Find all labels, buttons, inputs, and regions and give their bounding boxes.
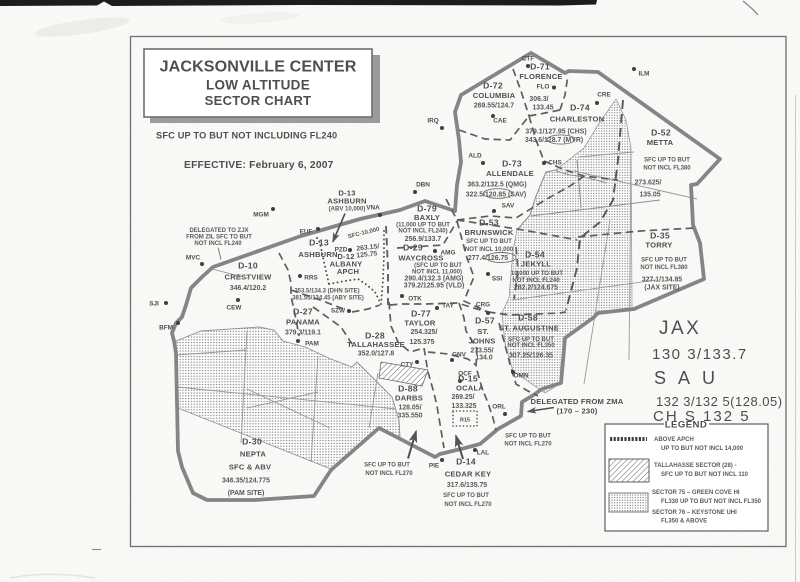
svg-text:DBN: DBN [416, 182, 430, 189]
svg-text:322.5/120.85 (SAV): 322.5/120.85 (SAV) [466, 192, 526, 199]
svg-text:ABOVE APCH: ABOVE APCH [654, 437, 694, 443]
svg-text:135.05: 135.05 [639, 192, 660, 199]
svg-text:JAX: JAX [659, 318, 701, 339]
svg-text:NEPTA: NEPTA [240, 450, 266, 459]
svg-text:S A U: S A U [654, 368, 719, 388]
svg-text:381.55/134.45 (ABY SITE): 381.55/134.45 (ABY SITE) [292, 296, 364, 302]
svg-text:273.625/: 273.625/ [635, 180, 662, 187]
svg-text:(ABV 10,000): (ABV 10,000) [329, 207, 366, 213]
svg-text:UP TO BUT NOT INCL 14,000: UP TO BUT NOT INCL 14,000 [661, 446, 744, 452]
svg-text:ALLENDALE: ALLENDALE [486, 169, 534, 178]
svg-text:OTK: OTK [408, 296, 422, 303]
svg-text:DARBS: DARBS [395, 394, 423, 403]
svg-text:FLO: FLO [537, 84, 550, 91]
svg-text:FL350 & ABOVE: FL350 & ABOVE [661, 519, 707, 525]
svg-text:CRG: CRG [476, 302, 490, 309]
svg-text:APCH: APCH [337, 267, 359, 276]
svg-text:277.4/126.75: 277.4/126.75 [468, 255, 508, 262]
svg-text:282.2/124.675: 282.2/124.675 [514, 285, 558, 292]
svg-text:JEKYLL: JEKYLL [521, 260, 551, 269]
svg-text:327.1/134.85: 327.1/134.85 [642, 277, 682, 284]
svg-text:134.0: 134.0 [475, 355, 492, 362]
svg-text:GNV: GNV [452, 352, 467, 359]
svg-text:MGM: MGM [253, 212, 269, 219]
svg-text:CRE: CRE [597, 92, 611, 99]
svg-text:TALLAHASSEE: TALLAHASSEE [347, 340, 405, 349]
svg-text:D-15: D-15 [458, 374, 478, 384]
svg-text:VNA: VNA [366, 205, 380, 212]
svg-text:D-79: D-79 [417, 204, 437, 214]
svg-text:353.5/134.3 (DHN SITE): 353.5/134.3 (DHN SITE) [294, 289, 359, 295]
svg-text:COLUMBIA: COLUMBIA [473, 91, 516, 100]
svg-text:D-52: D-52 [651, 128, 671, 138]
svg-text:SFC UP TO BUT: SFC UP TO BUT [443, 493, 489, 499]
svg-text:(PAM SITE): (PAM SITE) [228, 490, 265, 497]
svg-text:SFC UP TO BUT NOT INCLUDING FL: SFC UP TO BUT NOT INCLUDING FL240 [156, 131, 337, 141]
svg-text:NOT INCL FL270: NOT INCL FL270 [444, 502, 492, 508]
svg-text:IRQ: IRQ [427, 118, 438, 125]
svg-text:NOT INCL FL240: NOT INCL FL240 [194, 241, 242, 247]
svg-text:SSI: SSI [492, 276, 503, 283]
svg-text:10,000 UP TO BUT: 10,000 UP TO BUT [511, 271, 563, 277]
svg-text:(JAX SITE): (JAX SITE) [644, 285, 679, 292]
svg-text:125.375: 125.375 [410, 339, 435, 346]
svg-text:LAL: LAL [477, 450, 490, 457]
svg-text:SFC UP TO BUT: SFC UP TO BUT [466, 239, 512, 245]
svg-text:306.3/: 306.3/ [529, 96, 548, 103]
svg-text:SFC UP TO BUT: SFC UP TO BUT [364, 463, 410, 469]
svg-text:132 3/132 5(128.05): 132 3/132 5(128.05) [656, 394, 783, 409]
svg-text:SFC & ABV: SFC & ABV [229, 463, 272, 472]
svg-text:D-27: D-27 [293, 307, 313, 317]
svg-text:D-74: D-74 [570, 103, 590, 113]
svg-text:346.35/124.775: 346.35/124.775 [222, 478, 270, 485]
svg-text:CHARLESTON: CHARLESTON [550, 115, 605, 124]
svg-text:D-30: D-30 [242, 437, 262, 447]
svg-text:ST. AUGUSTINE: ST. AUGUSTINE [499, 324, 559, 333]
svg-text:OMN: OMN [514, 373, 529, 380]
svg-text:SECTOR 76 – KEYSTONE UHI: SECTOR 76 – KEYSTONE UHI [652, 510, 737, 516]
svg-text:D-35: D-35 [650, 231, 670, 241]
svg-text:379.2/125.95 (VLD): 379.2/125.95 (VLD) [404, 283, 465, 290]
svg-text:BFM: BFM [159, 325, 173, 332]
svg-text:EFFECTIVE: February 6, 2007: EFFECTIVE: February 6, 2007 [184, 160, 334, 171]
svg-text:352.0/127.8: 352.0/127.8 [358, 351, 395, 358]
svg-text:TALLAHASSE SECTOR (28) -: TALLAHASSE SECTOR (28) - [654, 463, 736, 469]
svg-text:307.25/126.35: 307.25/126.35 [509, 353, 553, 360]
svg-text:TAY: TAY [442, 303, 454, 310]
svg-text:PAM: PAM [305, 341, 319, 348]
svg-text:128.05/: 128.05/ [399, 405, 422, 412]
svg-text:D-10: D-10 [238, 261, 258, 271]
svg-text:SAV: SAV [502, 203, 515, 210]
svg-text:NOT INCL FL380: NOT INCL FL380 [640, 265, 688, 271]
svg-text:RRS: RRS [304, 275, 318, 282]
svg-text:CHS: CHS [548, 160, 562, 167]
svg-text:PANAMA: PANAMA [286, 318, 320, 327]
svg-text:CH S 132 5: CH S 132 5 [653, 408, 751, 425]
svg-text:ILM: ILM [638, 71, 649, 78]
svg-text:379.3/119.1: 379.3/119.1 [285, 330, 321, 337]
svg-text:269.25/: 269.25/ [452, 394, 475, 401]
svg-text:ALD: ALD [468, 153, 482, 160]
svg-text:269.55/124.7: 269.55/124.7 [474, 103, 514, 110]
svg-text:CEDAR KEY: CEDAR KEY [445, 470, 492, 479]
svg-text:SECTOR CHART: SECTOR CHART [205, 93, 312, 108]
svg-text:NOT INCL FL380: NOT INCL FL380 [643, 166, 691, 172]
svg-text:(170 – 230): (170 – 230) [556, 407, 597, 416]
svg-text:133.45: 133.45 [532, 105, 553, 112]
svg-text:317.6/135.75: 317.6/135.75 [447, 482, 487, 489]
svg-text:D-71: D-71 [530, 62, 550, 72]
svg-text:335.550: 335.550 [398, 413, 423, 420]
svg-text:CTY: CTY [401, 362, 415, 369]
svg-text:NOT INCL FL350: NOT INCL FL350 [507, 343, 555, 349]
svg-text:346.4/120.2: 346.4/120.2 [230, 285, 267, 292]
svg-text:D-58: D-58 [518, 313, 538, 323]
svg-text:D-57: D-57 [475, 316, 495, 326]
svg-text:TORRY: TORRY [645, 241, 672, 250]
svg-text:SECTOR 75 – GREEN COVE HI: SECTOR 75 – GREEN COVE HI [652, 490, 740, 496]
svg-text:FROM ZIL SFC TO BUT: FROM ZIL SFC TO BUT [186, 235, 252, 241]
svg-text:JOHNS: JOHNS [468, 337, 495, 346]
svg-text:133.325: 133.325 [452, 403, 477, 410]
svg-text:ASHBURN: ASHBURN [327, 197, 366, 206]
svg-text:LOW ALTITUDE: LOW ALTITUDE [206, 78, 310, 93]
svg-text:SFC UP TO BUT: SFC UP TO BUT [644, 158, 690, 164]
svg-text:D-73: D-73 [502, 159, 522, 169]
svg-text:(SFC UP TO BUT: (SFC UP TO BUT [414, 263, 462, 269]
svg-text:290.4/132.3 (AMG): 290.4/132.3 (AMG) [405, 276, 464, 283]
svg-text:JACKSONVILLE CENTER: JACKSONVILLE CENTER [160, 58, 357, 76]
svg-text:DELEGATED FROM ZMA: DELEGATED FROM ZMA [531, 397, 624, 406]
svg-text:D-88: D-88 [398, 384, 418, 394]
svg-text:D-28: D-28 [365, 331, 385, 341]
svg-text:CEW: CEW [227, 305, 243, 312]
svg-text:BRUNSWICK: BRUNSWICK [464, 228, 513, 237]
svg-text:ST.: ST. [477, 327, 489, 336]
svg-text:379.1/127.95 (CHS): 379.1/127.95 (CHS) [525, 129, 586, 136]
svg-text:OCALA: OCALA [456, 384, 484, 393]
svg-text:SFC UP TO BUT NOT INCL 110: SFC UP TO BUT NOT INCL 110 [661, 472, 749, 478]
svg-text:SFC UP TO BUT: SFC UP TO BUT [505, 434, 551, 440]
svg-text:EUF: EUF [300, 229, 313, 236]
svg-text:130 3/133.7: 130 3/133.7 [652, 346, 748, 363]
svg-text:363.2/132.5 (QMG): 363.2/132.5 (QMG) [467, 182, 526, 189]
svg-text:254.325/: 254.325/ [411, 329, 438, 336]
svg-text:D-53: D-53 [479, 218, 499, 228]
svg-text:MVC: MVC [186, 255, 201, 262]
svg-text:FLORENCE: FLORENCE [519, 72, 562, 81]
svg-text:SFC UP TO BUT: SFC UP TO BUT [641, 258, 687, 264]
svg-text:273.55/: 273.55/ [471, 348, 494, 355]
svg-text:D-77: D-77 [411, 309, 431, 319]
svg-text:D-29: D-29 [403, 243, 423, 253]
svg-text:D-54: D-54 [525, 250, 545, 260]
svg-text:BAXLY: BAXLY [414, 213, 440, 222]
svg-text:PIE: PIE [429, 463, 440, 470]
svg-text:NOT INCL FL240: NOT INCL FL240 [512, 278, 560, 284]
svg-text:D-14: D-14 [456, 457, 476, 467]
svg-text:TAYLOR: TAYLOR [404, 319, 435, 328]
svg-text:NOT INCL FL270: NOT INCL FL270 [365, 471, 413, 477]
svg-text:SZW: SZW [331, 308, 346, 315]
svg-text:NOT INCL FL240): NOT INCL FL240) [398, 229, 447, 235]
svg-text:D-72: D-72 [483, 81, 503, 91]
svg-text:NOT INCL FL270: NOT INCL FL270 [504, 442, 552, 448]
svg-text:DELEGATED TO ZJX: DELEGATED TO ZJX [189, 228, 248, 234]
svg-text:CAE: CAE [493, 118, 507, 125]
svg-text:ORL: ORL [492, 404, 506, 411]
svg-text:R15: R15 [460, 418, 470, 424]
svg-text:SJI: SJI [149, 301, 159, 308]
svg-text:WAYCROSS: WAYCROSS [398, 254, 443, 263]
svg-text:ASHBURN: ASHBURN [298, 250, 337, 259]
svg-text:METTA: METTA [647, 138, 674, 147]
svg-text:FL330 UP TO BUT NOT INCL FL350: FL330 UP TO BUT NOT INCL FL350 [661, 499, 762, 505]
svg-text:D-13: D-13 [309, 238, 329, 248]
svg-text:NOT INCL 10,000: NOT INCL 10,000 [465, 247, 514, 253]
